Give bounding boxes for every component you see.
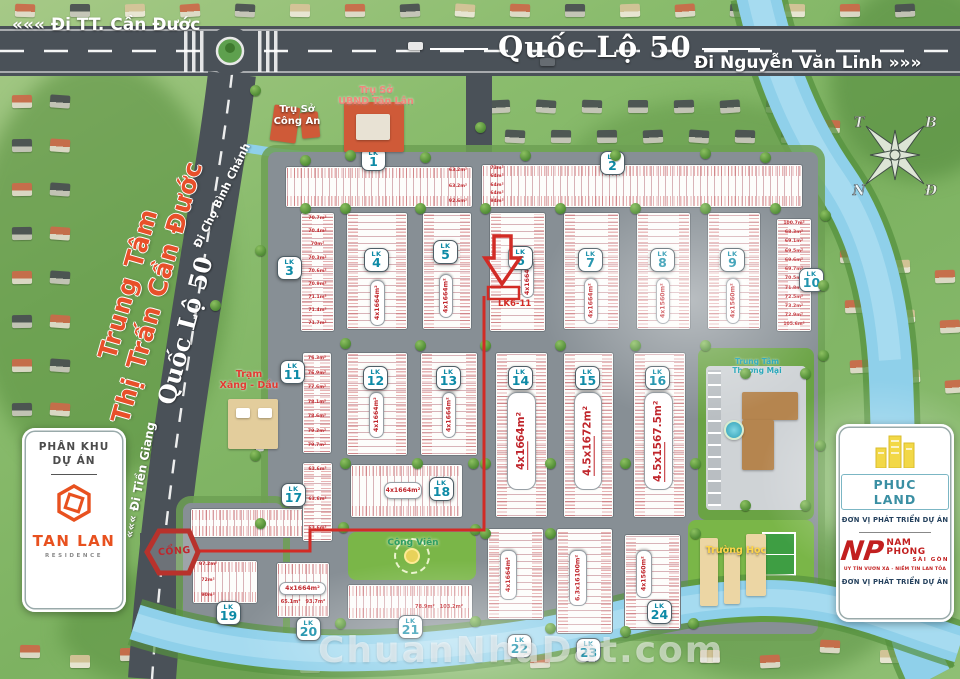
- highlighted-lot-outline: [488, 287, 519, 299]
- watermark: ChuanNhaDat.com: [318, 630, 724, 671]
- route-arrow-icon: [485, 236, 520, 284]
- tanlan-logo-icon: [54, 483, 94, 523]
- master-plan-map: LK163.2m²63.2m²92.6m²LK273m²64m²64m²64m²…: [0, 0, 960, 679]
- namphong-brand: NAM PHONG: [886, 539, 949, 557]
- developer-card: PHUC LAND ĐƠN VỊ PHÁT TRIỂN DỰ ÁN NP NAM…: [836, 424, 954, 622]
- compass-east: Đ: [924, 183, 938, 199]
- namphong-slogan: UY TÍN VƯƠN XA - NIỀM TIN LAN TỎA: [841, 567, 949, 572]
- developer-role-1: ĐƠN VỊ PHÁT TRIỂN DỰ ÁN: [841, 516, 949, 524]
- compass-west: T: [854, 115, 866, 131]
- phucland-logo-icon: [872, 432, 918, 468]
- tanlan-brand-sub: RESIDENCE: [26, 553, 122, 559]
- namphong-logo: NP NAM PHONG SÀI GÒN: [841, 539, 949, 564]
- compass-rose-icon: T B N Đ: [840, 100, 950, 210]
- highlighted-lot-label: LK6-11: [498, 299, 531, 309]
- phucland-brand: PHUC LAND: [841, 474, 949, 510]
- road-label-nguyen-van-linh: Đi Nguyễn Văn Linh »»»: [694, 53, 922, 73]
- route-line: [196, 296, 484, 551]
- developer-role-2: ĐƠN VỊ PHÁT TRIỂN DỰ ÁN: [841, 578, 949, 586]
- namphong-brand-sub: SÀI GÒN: [886, 557, 949, 564]
- arrows-left-icon: «««: [12, 15, 45, 35]
- road-label-can-duoc: ««« Đi TT. Cần Đước: [12, 15, 200, 35]
- compass-north: B: [924, 115, 937, 131]
- gate-label: CỔNG: [158, 545, 191, 558]
- tanlan-brand: TAN LAN: [26, 532, 122, 550]
- project-card: PHÂN KHUDỰ ÁN TAN LAN RESIDENCE: [22, 428, 126, 612]
- namphong-np-icon: NP: [839, 540, 885, 564]
- compass-south: N: [852, 183, 867, 199]
- arrows-right-icon: »»»: [889, 53, 922, 73]
